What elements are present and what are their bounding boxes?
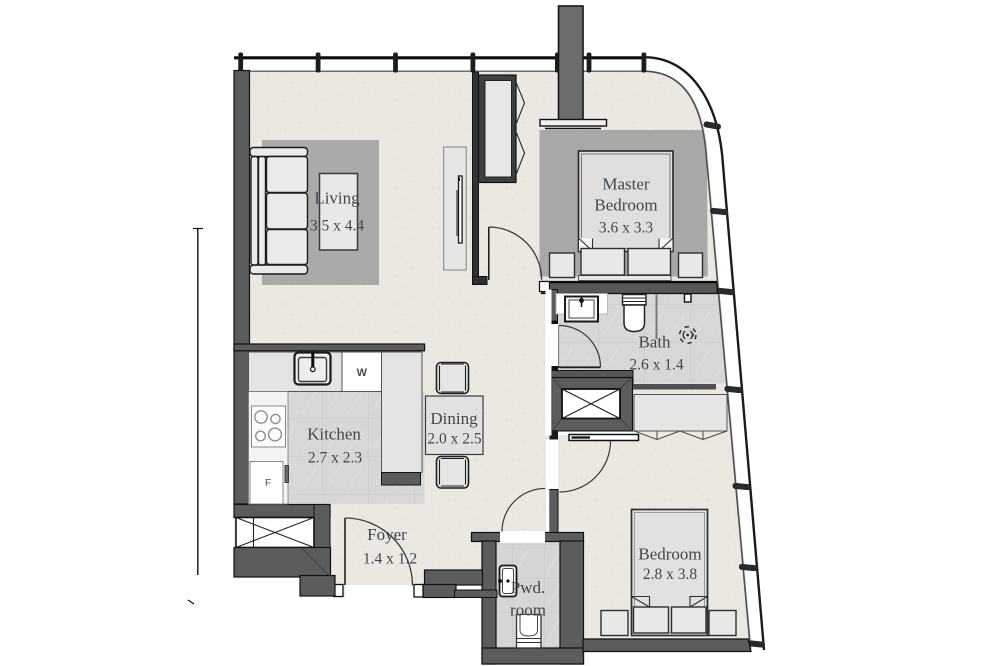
svg-text:Master: Master bbox=[602, 175, 650, 194]
svg-text:Living: Living bbox=[314, 189, 360, 208]
svg-text:Pwd.: Pwd. bbox=[511, 578, 545, 597]
svg-text:Kitchen: Kitchen bbox=[307, 425, 361, 444]
svg-text:Bath: Bath bbox=[638, 333, 671, 352]
svg-text:2.8 x 3.8: 2.8 x 3.8 bbox=[643, 566, 698, 583]
svg-text:2.7 x 2.3: 2.7 x 2.3 bbox=[308, 450, 363, 467]
svg-text:Foyer: Foyer bbox=[367, 525, 407, 544]
svg-text:Bedroom: Bedroom bbox=[594, 196, 657, 215]
svg-text:3.6 x 3.3: 3.6 x 3.3 bbox=[599, 220, 654, 237]
svg-text:2.0 x 2.5: 2.0 x 2.5 bbox=[427, 431, 482, 448]
svg-text:Dining: Dining bbox=[430, 409, 478, 428]
svg-text:1.4 x 1.2: 1.4 x 1.2 bbox=[363, 551, 417, 568]
svg-text:W: W bbox=[357, 367, 368, 379]
svg-text:F: F bbox=[265, 478, 271, 489]
svg-text:2.6 x 1.4: 2.6 x 1.4 bbox=[629, 357, 684, 374]
svg-text:Bedroom: Bedroom bbox=[638, 545, 701, 564]
svg-text:room: room bbox=[510, 601, 546, 620]
svg-text:3.5 x 4.4: 3.5 x 4.4 bbox=[310, 218, 365, 235]
